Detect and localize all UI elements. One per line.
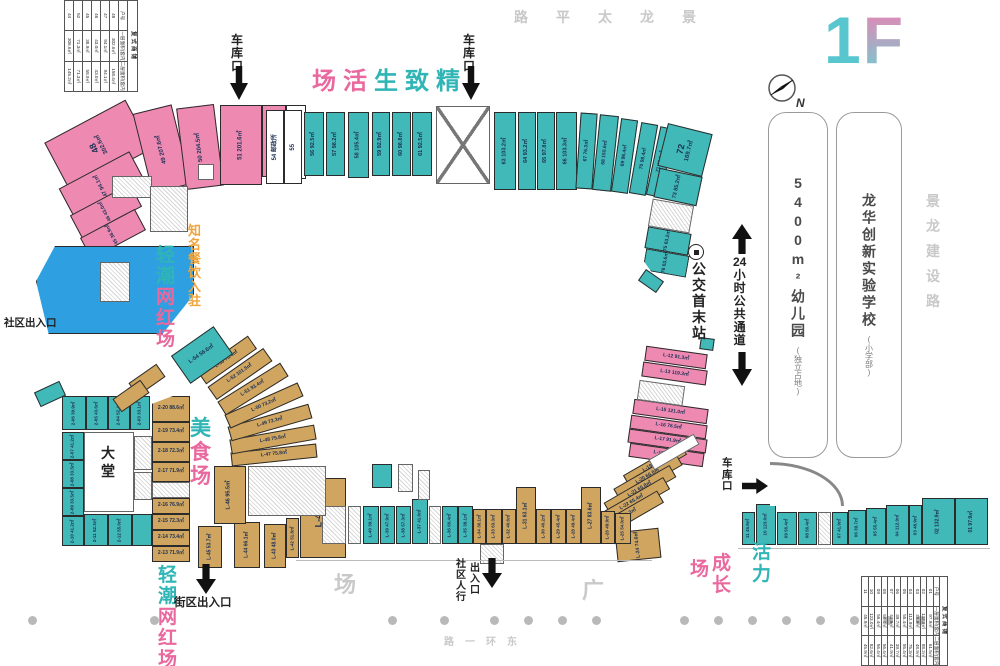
unit-07: 07 41.9㎡ [832, 512, 848, 545]
duplex-units-table-topleft: 复式商铺户号一层面积(套内)二层面积(套内)48302.6㎡158.4㎡4794… [64, 0, 138, 92]
zone-vitality-col3-char: 场 [690, 560, 709, 579]
street-tree-dot [28, 616, 37, 625]
block [372, 464, 392, 488]
unit-L-31: L-31 63.1㎡ [516, 487, 536, 544]
zone-light-trend-lower-char: 场 [158, 650, 177, 666]
unit-04: 04 112.9㎡ [886, 505, 909, 545]
zone-vitality-col2-char: 成 [712, 554, 731, 573]
table-cell: 03 [914, 577, 921, 607]
street-tree-dot [490, 616, 499, 625]
table-row: 0856.4㎡56.4㎡ [881, 577, 888, 666]
street-tree-dot [440, 616, 449, 625]
table-header-cell: 一层面积(套内) [118, 31, 127, 61]
road-top-label-char: 路 [514, 10, 528, 24]
unit-2-17: 2-17 71.9㎡ [152, 462, 190, 482]
table-cell: 39.7㎡ [894, 606, 901, 636]
unit-L-39: L-39 47.9㎡ [380, 506, 395, 544]
unit-2-11: 2-11 52.3㎡ [84, 514, 108, 546]
table-header-cell: 二层面积(套内) [118, 61, 127, 91]
pedestrian-exit-line1-char: 行 [456, 593, 466, 603]
school-zone: 龙华创新实验学校 (小学部) [836, 112, 902, 458]
street-tree-dot [150, 616, 159, 625]
famous-restaurant-note-char: 名 [188, 238, 201, 251]
passage-24h-label-char: 公 [734, 295, 746, 307]
table-cell: 45 [82, 1, 91, 31]
unit-09: 09 56.4㎡ [777, 512, 797, 545]
zone-boutique-life-char: 活 [343, 70, 367, 94]
unit-2-08: 2-08 33.5㎡ [62, 460, 84, 488]
table-cell: 45.9㎡ [862, 606, 869, 636]
plaza-char-1-char: 场 [334, 574, 356, 596]
service-core [818, 512, 831, 545]
table-cell: 56.4㎡ [881, 636, 888, 666]
pedestrian-exit-line2-char: 出 [470, 564, 480, 574]
kindergarten-name: 5400m²幼儿园 [788, 175, 808, 340]
pedestrian-exit-line2-char: 入 [470, 575, 480, 585]
table-cell: 145.2㎡ [65, 61, 74, 91]
table-header-cell: 户号 [118, 1, 127, 31]
unit-L-42: L-42 51.8㎡ [286, 518, 299, 558]
unit-2-16: 2-16 76.9㎡ [152, 498, 190, 514]
zone-light-trend-lower-char: 网 [158, 608, 177, 627]
table-cell: 04 [907, 577, 914, 607]
street-tree-dot [714, 616, 723, 625]
floor-logo-digit: 1 [824, 3, 863, 77]
bus-terminus-label-char: 首 [692, 294, 706, 308]
unit-L-46: L-46 95.5㎡ [214, 466, 246, 524]
lobby-label-char: 大 [101, 446, 115, 460]
unit-08: 08 56.4㎡ [798, 512, 817, 545]
table-row: 48302.6㎡158.4㎡ [109, 1, 118, 92]
table-row: 4643.0㎡43.0㎡ [91, 1, 100, 92]
floor-logo: 1F [824, 2, 905, 78]
passage-24h-label-char: 共 [734, 308, 746, 320]
table-cell: 08 [881, 577, 888, 607]
table-cell: 52 [74, 1, 83, 31]
unit-2-06: 2-06 39.9㎡ [62, 396, 86, 430]
zone-light-trend-upper-char: 网 [156, 288, 175, 307]
table-row: 0639.7㎡39.7㎡ [894, 577, 901, 666]
parking-ramp [436, 106, 490, 184]
unit-60: 60 98.8㎡ [392, 112, 411, 176]
table-cell: 56.4㎡ [881, 606, 888, 636]
zone-light-trend-upper-char: 红 [156, 309, 175, 328]
unit-L-30: L-30 40.2㎡ [536, 509, 551, 544]
unit-L-45: L-45 53.7㎡ [198, 526, 222, 568]
bus-terminus-label-char: 交 [692, 278, 706, 292]
road-top-label-char: 平 [556, 10, 570, 24]
road-bottom-label-char: 一 [465, 638, 475, 648]
street-tree-dot [524, 616, 533, 625]
table-row: 4538.9㎡58.9㎡ [82, 1, 91, 92]
duplex-units-table-bottomright: 复式商铺户号一层面积(套内)二层面积(套内)0197.9㎡61.5㎡02132.… [872, 576, 948, 666]
passage-down-arrow [732, 352, 752, 386]
street-tree-dot [748, 616, 757, 625]
zone-light-trend-upper-char: 轻 [156, 246, 175, 265]
lobby-label-char: 堂 [101, 464, 115, 478]
table-row: 10123.0㎡82.6㎡ [868, 577, 875, 666]
zone-light-trend-lower: 轻潮网红场 [158, 566, 177, 666]
unit-57: 57 98.2㎡ [326, 112, 345, 176]
zone-light-trend-upper: 轻潮网红场 [156, 246, 175, 349]
table-cell: 01 [927, 577, 934, 607]
table-cell: 43.0㎡ [91, 31, 100, 61]
famous-restaurant-note-char: 饮 [188, 266, 201, 279]
table-row: 44306.6㎡145.2㎡ [65, 1, 74, 92]
unit-05: 05 55.4㎡ [866, 508, 886, 545]
service-core [134, 472, 152, 500]
unit-63: 63 103.2㎡ [494, 112, 516, 190]
road-top-label-char: 龙 [640, 10, 654, 24]
table-cell: 45.9㎡ [862, 636, 869, 666]
unit-58: 58 105.4㎡ [348, 112, 369, 178]
zone-boutique-life-char: 致 [405, 70, 429, 94]
unit-L-38: L-38 57.3㎡ [396, 506, 411, 544]
table-cell: 97.9㎡ [927, 606, 934, 636]
garage-entry-top2-char: 库 [463, 47, 475, 59]
unit-2-12: 2-12 55.0㎡ [108, 514, 132, 546]
street-exit-label-char: 街区出入口 [174, 598, 232, 610]
plaza-char-2-char: 广 [582, 580, 604, 602]
road-bottom-label-char: 环 [486, 638, 496, 648]
table-cell: 47 [100, 1, 109, 31]
table-cell: 48.9㎡ [914, 636, 921, 666]
table-cell: 48.9㎡ [914, 606, 921, 636]
unit-L-33: L-33 63.3㎡ [486, 509, 502, 544]
unit-L-26: L-26 49.9㎡ [601, 511, 615, 544]
unit-11: 11 45.9㎡ [742, 512, 755, 545]
zone-vitality-col2: 成长 [712, 554, 731, 595]
unit-2-07: 2-07 41.2㎡ [62, 432, 84, 460]
garage-entry-top1-char: 车 [231, 34, 243, 46]
zone-boutique-life-char: 精 [436, 70, 460, 94]
table-cell: 306.6㎡ [65, 31, 74, 61]
street-exit-label: 街区出入口 [174, 598, 232, 610]
unit-56: 56 92.5㎡ [304, 112, 324, 176]
street-tree-dot [816, 616, 825, 625]
road-bottom-label-char: 东 [507, 638, 517, 648]
community-exit-label: 社区出入口 [4, 318, 57, 329]
table-cell: 39.7㎡ [894, 636, 901, 666]
table-cell: 94.1㎡ [100, 61, 109, 91]
unit-61: 61 92.5㎡ [412, 112, 432, 176]
table-row: 0956.4㎡56.4㎡ [875, 577, 882, 666]
table-cell: 71.3㎡ [74, 61, 83, 91]
unit-59: 59 92.9㎡ [372, 112, 390, 176]
bus-terminus-label-char: 站 [692, 326, 706, 340]
table-cell: 75.3㎡ [907, 636, 914, 666]
table-cell: 302.6㎡ [109, 31, 118, 61]
table-cell: 71.3㎡ [74, 31, 83, 61]
table-cell: 123.0㎡ [868, 606, 875, 636]
unit-L-25: L-25 54.0㎡ [615, 513, 631, 544]
table-cell: 09 [875, 577, 882, 607]
table-cell: 41.9㎡ [888, 606, 895, 636]
table-cell: 55.4㎡ [901, 636, 908, 666]
table-cell: 88.2㎡ [920, 636, 927, 666]
table-cell: 158.4㎡ [109, 61, 118, 91]
table-row: 04112.9㎡75.3㎡ [907, 577, 914, 666]
table-cell: 94.1㎡ [100, 31, 109, 61]
garage-entry-top1-char: 库 [231, 47, 243, 59]
road-top-label-char: 景 [682, 10, 696, 24]
garage-entry-top2-char: 车 [463, 34, 475, 46]
pedestrian-exit-line1-char: 区 [456, 571, 466, 581]
compass-n-label: N [796, 96, 805, 110]
road-top-label-char: 太 [598, 10, 612, 24]
table-row: 0197.9㎡61.5㎡ [927, 577, 934, 666]
service-core [348, 506, 361, 544]
unit-55: 55 [284, 110, 302, 184]
table-cell: 55.4㎡ [901, 606, 908, 636]
table-cell: 56.4㎡ [875, 606, 882, 636]
passage-up-arrow [732, 224, 752, 254]
bus-terminus-label: 公交首末站 [692, 262, 706, 340]
table-cell: 43.0㎡ [91, 61, 100, 91]
unit-L-35: L-35 38.1㎡ [458, 506, 473, 544]
passage-24h-label-char: 时 [734, 282, 746, 294]
unit-2-20: 2-20 88.6㎡ [152, 396, 190, 422]
unit-2-18: 2-18 72.3㎡ [152, 442, 190, 462]
unit-2-10: 2-10 41.2㎡ [62, 516, 84, 546]
table-cell: 11 [862, 577, 869, 607]
road-bottom-label-char: 路 [444, 638, 454, 648]
famous-restaurant-note-char: 驻 [188, 294, 201, 307]
unit-L-28: L-28 49.4㎡ [566, 509, 581, 544]
unit-2-14: 2-14 73.4㎡ [152, 530, 190, 546]
street-tree-dot [782, 616, 791, 625]
table-cell: 82.6㎡ [868, 636, 875, 666]
road-right-label-char: 龙 [926, 219, 940, 233]
garage-entry-right-char: 库 [722, 470, 733, 481]
bus-stop-icon [688, 244, 704, 260]
unit-03: 03 48.9㎡ [909, 505, 922, 545]
table-row: 5271.3㎡71.3㎡ [74, 1, 83, 92]
service-core [429, 506, 441, 544]
block [132, 514, 152, 546]
famous-restaurant-note-char: 餐 [188, 252, 201, 265]
pedestrian-exit-arrow [482, 558, 502, 588]
unit-51: 51 201.6㎡ [220, 105, 262, 185]
pedestrian-exit-line2-char: 口 [470, 586, 480, 596]
table-cell: 46 [91, 1, 100, 31]
zone-vitality-col3: 场 [690, 560, 709, 579]
table-cell: 02 [920, 577, 927, 607]
unit-06: 06 39.7㎡ [848, 510, 866, 545]
table-cell: 132.9㎡ [920, 606, 927, 636]
zone-food-court: 美食场 [190, 418, 211, 487]
lobby-label: 大堂 [101, 446, 115, 478]
zone-vitality-col2-char: 长 [712, 576, 731, 595]
table-cell: 10 [868, 577, 875, 607]
service-core [248, 466, 326, 516]
table-cell: 06 [894, 577, 901, 607]
zone-light-trend-lower-char: 轻 [158, 566, 177, 585]
table-cell: 48 [109, 1, 118, 31]
zone-vitality-col1: 活力 [752, 543, 771, 584]
table-cell: 44 [65, 1, 74, 31]
service-core [152, 482, 190, 498]
unit-10: 10 123.0㎡ [756, 504, 776, 545]
table-row: 0741.9㎡41.9㎡ [888, 577, 895, 666]
unit-L-44: L-44 66.1㎡ [234, 522, 260, 568]
passage-24h-label: 24小时公共通道 [733, 256, 746, 346]
school-name: 龙华创新实验学校 [859, 193, 879, 329]
zone-light-trend-lower-char: 红 [158, 629, 177, 648]
passage-24h-label-char: 24 [733, 256, 746, 268]
table-cell: 05 [901, 577, 908, 607]
unit-L-37: L-37 41.6㎡ [412, 499, 428, 544]
garage-entry-right-char: 车 [722, 458, 733, 469]
unit-01: 01 97.9㎡ [955, 498, 988, 545]
street-tree-dot [850, 616, 859, 625]
unit-2-19: 2-19 73.4㎡ [152, 422, 190, 442]
zone-boutique-life: 场活生致精 [312, 70, 460, 94]
pedestrian-exit-line1: 社区人行 [456, 560, 466, 603]
unit-64: 64 93.2㎡ [518, 112, 536, 190]
unit-2-05: 2-05 43.6㎡ [86, 396, 108, 430]
road-right-label-char: 设 [926, 269, 940, 283]
block [296, 560, 652, 561]
zone-food-court-char: 场 [190, 466, 211, 487]
unit-L-40: L-40 39.1㎡ [363, 506, 379, 544]
floor-plan-1f: 1F N 5400m²幼儿园 (独立占地) 龙华创新实验学校 (小学部) 483… [0, 0, 1000, 666]
passage-24h-label-char: 通 [734, 321, 746, 333]
garage-right-arrow [742, 478, 768, 494]
zone-boutique-life-char: 场 [312, 70, 336, 94]
bus-terminus-label-char: 公 [692, 262, 706, 276]
school-note: (小学部) [864, 335, 875, 377]
unit-2-15: 2-15 72.3㎡ [152, 514, 190, 530]
table-row: 02132.9㎡88.2㎡ [920, 577, 927, 666]
garage-entry-right: 车库口 [722, 458, 733, 492]
service-core [112, 176, 152, 198]
table-row: 4794.1㎡94.1㎡ [100, 1, 109, 92]
unit-L-36: L-36 60.4㎡ [442, 506, 458, 544]
table-row: 1145.9㎡45.9㎡ [862, 577, 869, 666]
floor-logo-letter: F [863, 3, 905, 77]
unit-L-27: L-27 83.6㎡ [581, 487, 601, 544]
unit-2-09: 2-09 33.5㎡ [62, 488, 84, 516]
street-tree-dot [558, 616, 567, 625]
famous-restaurant-note-char: 知 [188, 224, 201, 237]
road-right-label: 景龙建设路 [926, 194, 940, 308]
famous-restaurant-note: 知名餐饮入驻 [188, 224, 201, 307]
pedestrian-exit-line1-char: 人 [456, 582, 466, 592]
garage-top2-arrow [462, 66, 480, 100]
passage-24h-label-char: 小 [734, 269, 746, 281]
street-tree-dot [388, 616, 397, 625]
road-right-label-char: 路 [926, 294, 940, 308]
unit-65: 65 97.8㎡ [537, 112, 555, 190]
road-bottom-label: 路一环东 [444, 638, 517, 648]
road-top-label: 路平太龙景 [514, 10, 696, 24]
plaza-char-2: 广 [582, 580, 604, 602]
table-cell: 56.4㎡ [875, 636, 882, 666]
compass: N [762, 68, 808, 114]
table-title: 复式商铺 [940, 577, 948, 666]
table-cell: 58.9㎡ [82, 61, 91, 91]
road-right-label-char: 景 [926, 194, 940, 208]
street-tree-dot [592, 616, 601, 625]
table-cell: 112.9㎡ [907, 606, 914, 636]
table-header-cell: 二层面积(套内) [933, 636, 940, 666]
table-header-cell: 户号 [933, 577, 940, 607]
block [198, 164, 214, 180]
table-cell: 07 [888, 577, 895, 607]
unit-L-34: L-34 36.1㎡ [473, 509, 486, 544]
street-tree-dot [680, 616, 689, 625]
service-core [134, 436, 152, 470]
service-core [100, 262, 130, 302]
street-exit-arrow [196, 564, 216, 594]
zone-light-trend-upper-char: 潮 [156, 267, 175, 286]
unit-66: 66 103.3㎡ [556, 112, 577, 190]
unit-02: 02 132.9㎡ [922, 498, 955, 545]
table-row: 0555.4㎡55.4㎡ [901, 577, 908, 666]
community-exit-label-char: 社区出入口 [4, 318, 57, 329]
unit-L-29: L-29 45.4㎡ [551, 509, 566, 544]
unit-54: 54 邮政所 [266, 110, 284, 184]
table-cell: 61.5㎡ [927, 636, 934, 666]
garage-ramp-curve [770, 462, 844, 506]
zone-vitality-col1-char: 活 [752, 543, 771, 562]
zone-food-court-char: 美 [190, 418, 211, 439]
table-title: 复式商铺 [127, 1, 137, 92]
table-cell: 41.9㎡ [888, 636, 895, 666]
zone-vitality-col1-char: 力 [752, 565, 771, 584]
service-core [418, 470, 430, 500]
zone-food-court-char: 食 [190, 442, 211, 463]
service-core [150, 186, 188, 232]
unit-L-32: L-32 40.6㎡ [502, 509, 516, 544]
zone-light-trend-upper-char: 场 [156, 330, 175, 349]
pedestrian-exit-line2: 出入口 [470, 564, 480, 596]
unit-2-13: 2-13 71.9㎡ [152, 546, 190, 562]
garage-entry-right-char: 口 [722, 481, 733, 492]
zone-boutique-life-char: 生 [374, 70, 398, 94]
passage-24h-label-char: 道 [734, 334, 746, 346]
table-cell: 38.9㎡ [82, 31, 91, 61]
kindergarten-zone: 5400m²幼儿园 (独立占地) [768, 112, 828, 458]
unit-L-43: L-43 48.0㎡ [264, 524, 286, 568]
road-right-label-char: 建 [926, 244, 940, 258]
service-core [398, 464, 413, 492]
famous-restaurant-note-char: 入 [188, 280, 201, 293]
kindergarten-note: (独立占地) [793, 346, 804, 396]
block [738, 548, 990, 549]
plaza-char-1: 场 [334, 574, 356, 596]
garage-top1-arrow [230, 66, 248, 100]
pedestrian-exit-line1-char: 社 [456, 560, 466, 570]
bus-terminus-label-char: 末 [692, 310, 706, 324]
table-header-cell: 一层面积(套内) [933, 606, 940, 636]
table-row: 0348.9㎡48.9㎡ [914, 577, 921, 666]
